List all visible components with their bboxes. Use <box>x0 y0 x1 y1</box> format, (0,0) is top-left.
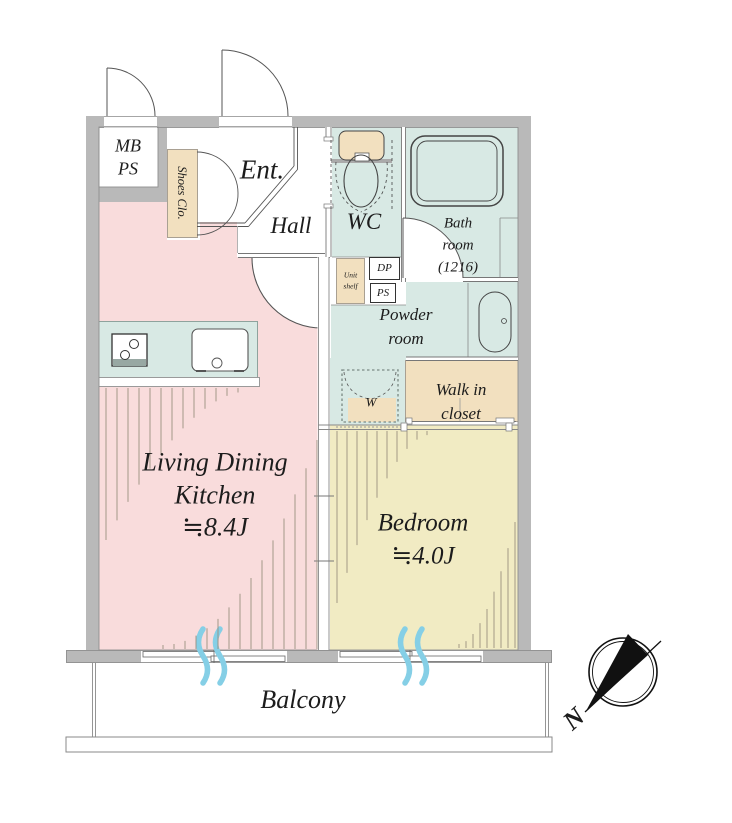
floor-plan: DP PS MB PS Shoes Clo. Ent. Hall WC Bath… <box>0 0 732 823</box>
hall-label: Hall <box>271 211 312 241</box>
unit-shelf-line2: shelf <box>343 281 357 292</box>
walk-in-closet-line2: closet <box>436 402 487 426</box>
wall-bottom-right-pier <box>483 650 552 663</box>
wall-bottom-center-pier <box>287 650 338 663</box>
bathroom-line3: (1216) <box>438 257 478 279</box>
powder-room-line1: Powder <box>380 303 433 327</box>
wc-area <box>331 127 401 257</box>
unit-shelf-label: Unit shelf <box>343 271 357 292</box>
window-ldk <box>141 650 287 663</box>
bathroom-line1: Bath <box>438 213 478 235</box>
window-bedroom <box>339 650 482 663</box>
walk-in-closet-label: Walk in closet <box>436 378 487 426</box>
unit-shelf-line1: Unit <box>343 271 357 282</box>
wall-mbps-bottom <box>86 187 167 202</box>
mbps-line2: PS <box>115 157 141 180</box>
shoes-closet-label: Shoes Clo. <box>174 166 190 219</box>
bedroom-line2: ≒4.0J <box>378 540 469 573</box>
ldk-line3: ≒8.4J <box>142 511 287 544</box>
mbps-label: MB PS <box>115 135 141 180</box>
walk-in-closet-line1: Walk in <box>436 378 487 402</box>
entrance-door <box>219 50 292 128</box>
ldk-line1: Living Dining <box>142 446 287 479</box>
kitchen-counter <box>99 322 257 378</box>
bathroom-label: Bath room (1216) <box>438 213 478 278</box>
kitchen-counter-ledge <box>99 378 259 386</box>
balcony-label: Balcony <box>260 683 345 717</box>
dp-label: DP <box>377 261 392 275</box>
entrance-label: Ent. <box>240 152 284 187</box>
mbps-door <box>104 68 157 128</box>
mbps-line1: MB <box>115 135 141 158</box>
ps-box: PS <box>370 283 396 303</box>
wall-bottom-left-pier <box>66 650 141 663</box>
ldk-room-area <box>99 202 319 650</box>
bathroom-line2: room <box>438 235 478 257</box>
powder-room-label: Powder room <box>380 303 433 351</box>
washer-area <box>330 358 406 425</box>
wall-top-3 <box>291 116 531 127</box>
north-compass-icon <box>585 634 661 712</box>
wc-label: WC <box>347 207 382 237</box>
washer-label: W <box>366 395 377 412</box>
ldk-line2: Kitchen <box>142 479 287 512</box>
ps-label: PS <box>377 286 389 300</box>
north-label: N <box>556 700 593 738</box>
bedroom-line1: Bedroom <box>378 508 469 541</box>
bedroom-label: Bedroom ≒4.0J <box>378 508 469 573</box>
wall-right <box>518 116 531 663</box>
ldk-label: Living Dining Kitchen ≒8.4J <box>142 446 287 544</box>
dp-box: DP <box>369 257 400 280</box>
powder-room-line2: room <box>380 327 433 351</box>
